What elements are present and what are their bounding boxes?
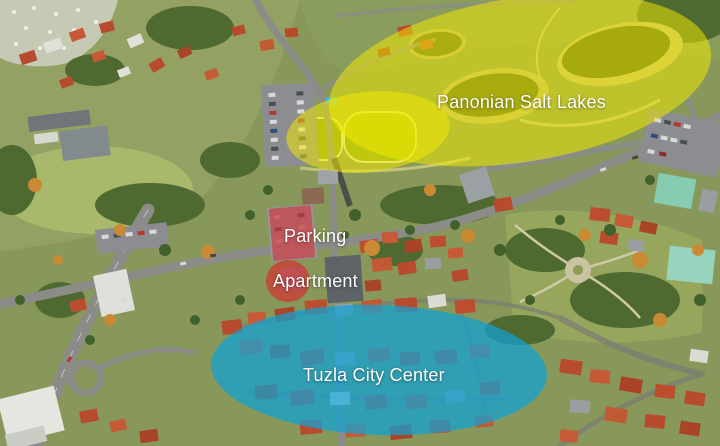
apartment-label: Apartment — [273, 272, 358, 290]
aerial-map: Panonian Salt Lakes Parking Apartment Tu… — [0, 0, 720, 446]
city-center-label: Tuzla City Center — [303, 366, 445, 384]
parking-label: Parking — [284, 227, 346, 245]
salt-lakes-label: Panonian Salt Lakes — [437, 93, 606, 111]
park-fountain — [573, 265, 583, 275]
